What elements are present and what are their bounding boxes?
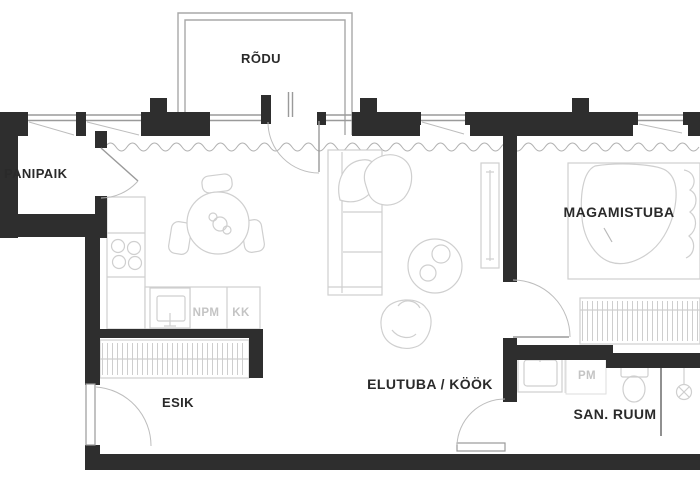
room-label-magamistuba: MAGAMISTUBA xyxy=(564,204,675,220)
floor-plan: RÕDU PANIPAIK MAGAMISTUBA ESIK ELUTUBA /… xyxy=(0,0,700,500)
fixture-label-pm: PM xyxy=(578,370,596,382)
floor-plan-canvas: RÕDU PANIPAIK MAGAMISTUBA ESIK ELUTUBA /… xyxy=(0,0,700,500)
room-label-elutuba-kook: ELUTUBA / KÖÖK xyxy=(367,376,493,392)
sofa xyxy=(328,150,412,295)
window-balcony-right xyxy=(326,115,352,121)
balcony-door xyxy=(268,92,319,173)
bedroom-door xyxy=(513,280,570,337)
room-label-panipaik: PANIPAIK xyxy=(4,166,68,181)
window-kitchen xyxy=(86,115,141,135)
bed xyxy=(568,163,700,279)
esik-wardrobe xyxy=(100,340,249,378)
wall-plaster-wave xyxy=(105,143,699,151)
room-label-esik: ESIK xyxy=(162,395,194,410)
sofa-cushion xyxy=(364,155,411,205)
plant xyxy=(381,300,431,348)
window-bedroom xyxy=(638,115,683,133)
bathroom-door xyxy=(457,399,505,451)
panipaik-door xyxy=(101,148,138,198)
shower-head xyxy=(677,367,692,400)
fixture-label-npm: NPM xyxy=(193,307,220,319)
radiator xyxy=(481,163,499,268)
kitchen-sink xyxy=(150,288,190,328)
bedroom-wardrobe xyxy=(580,298,700,344)
window-living xyxy=(421,115,465,134)
window-panipaik xyxy=(28,115,76,135)
coffee-table xyxy=(408,239,462,293)
entry-door xyxy=(86,384,151,446)
dining-table xyxy=(168,173,266,255)
toilet xyxy=(621,366,648,402)
room-label-rodu: RÕDU xyxy=(241,51,281,66)
fixture-label-kk: KK xyxy=(232,307,250,319)
window-balcony-left xyxy=(210,115,261,121)
room-label-san-ruum: SAN. RUUM xyxy=(574,406,657,422)
